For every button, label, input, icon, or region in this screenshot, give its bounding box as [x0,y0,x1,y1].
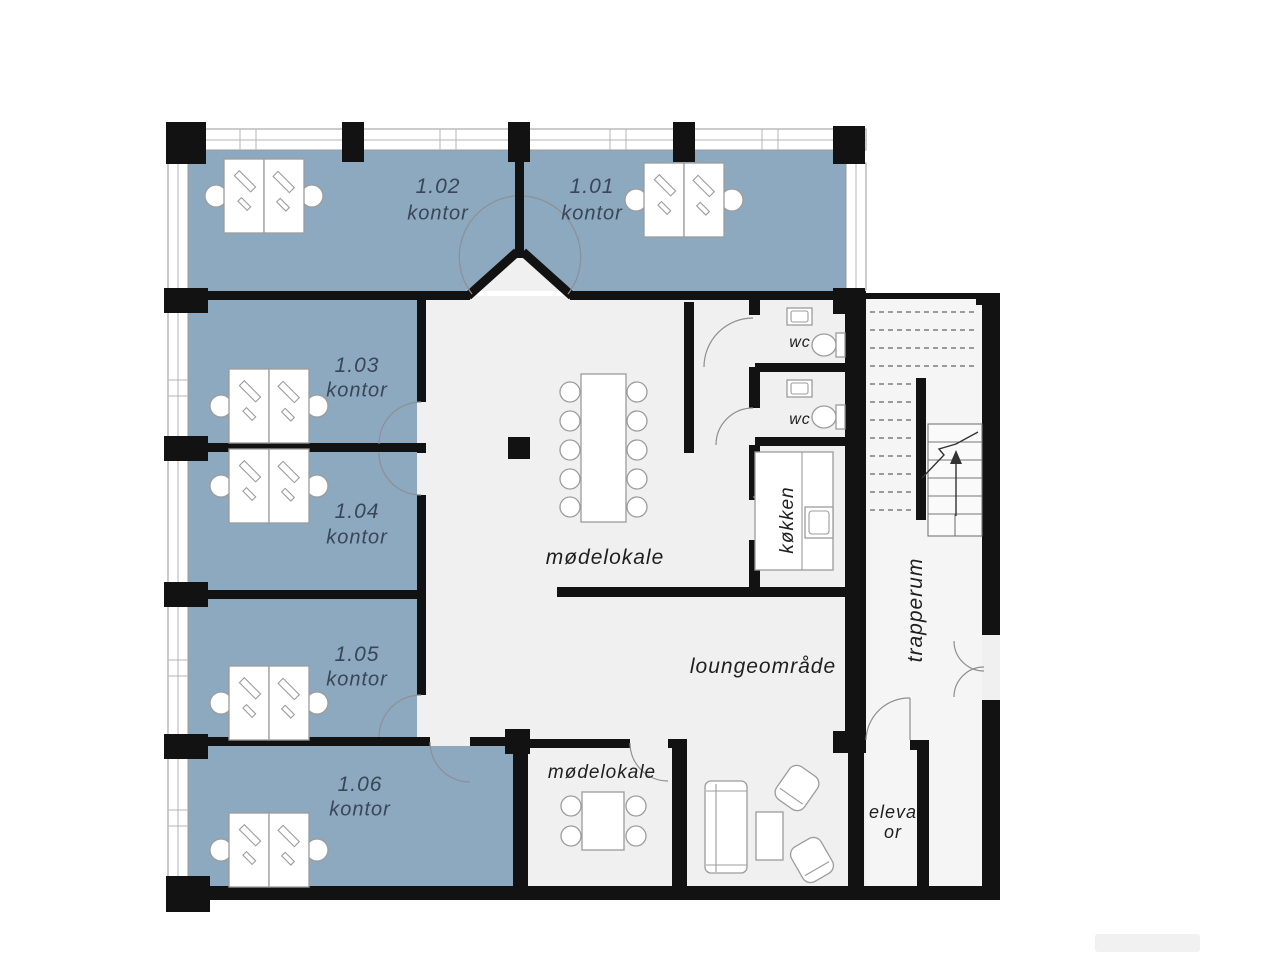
room-type-106: kontor [329,799,391,822]
toilet-tank [836,333,845,357]
label-kitchen: køkken [777,486,799,553]
column [508,437,530,459]
toilet-bowl [812,334,836,356]
label-wc-upper: wc [789,334,811,352]
floor-plan-drawing [0,0,1280,960]
label-stairwell: trapperum [904,558,928,663]
room-type-104: kontor [326,527,388,550]
room-number-102: 1.02 [416,175,461,199]
room-number-103: 1.03 [335,354,380,378]
room-number-106: 1.06 [338,773,383,797]
room-type-102: kontor [407,203,469,226]
sofa [705,781,747,873]
room-type-105: kontor [326,669,388,692]
label-elevator: eleva or [869,802,917,842]
toilet-bowl [812,406,836,428]
label-meeting-small: mødelokale [548,762,656,784]
room-number-105: 1.05 [335,643,380,667]
stair-stringer [916,378,926,520]
floor-plan: 1.02 kontor 1.01 kontor 1.03 kontor 1.04… [0,0,1280,960]
label-wc-lower: wc [789,411,811,429]
watermark [1095,934,1200,952]
label-meeting-main: mødelokale [546,546,665,570]
conference-table [560,374,647,522]
label-elevator-line1: eleva [869,802,917,822]
room-type-103: kontor [326,380,388,403]
room-number-101: 1.01 [570,175,615,199]
label-elevator-line2: or [869,822,917,842]
toilet-tank [836,405,845,429]
coffee-table [756,812,783,860]
room-number-104: 1.04 [335,500,380,524]
room-type-101: kontor [561,203,623,226]
label-lounge: loungeområde [690,655,836,679]
